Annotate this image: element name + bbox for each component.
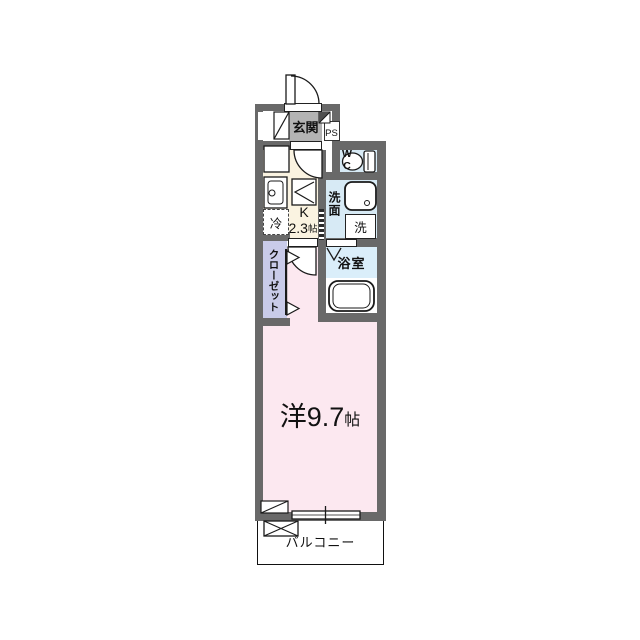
- closet-door-icon: [285, 249, 299, 315]
- kitchen-size-unit: 帖: [308, 221, 318, 235]
- ps-label: PS: [323, 126, 340, 140]
- shoe-cabinet-icon: [274, 112, 289, 139]
- closet-label: クローゼット: [264, 244, 284, 316]
- kitchen-label: K: [292, 204, 316, 219]
- wc-label-line1: W: [342, 148, 352, 160]
- main-room-label: 洋9.7帖: [263, 395, 377, 433]
- wc-label: W C: [340, 149, 354, 173]
- balcony-label: バルコニー: [257, 532, 384, 550]
- kitchen-size-value: 2.3: [289, 220, 308, 236]
- washroom-label: 洗面: [327, 186, 342, 222]
- main-room-size-unit: 帖: [344, 406, 360, 430]
- kitchen-counter-icon: [264, 146, 289, 172]
- kitchen-size: 2.3帖: [284, 219, 322, 236]
- floor-plan: 玄関 PS W C 洗面 洗 浴室 冷 K 2.3帖 クローゼット 洋9.7帖 …: [0, 0, 640, 640]
- bathtub-icon: [326, 278, 377, 313]
- genkan-label: 玄関: [289, 111, 322, 141]
- washer-label: 洗: [345, 214, 376, 239]
- hatch-box-icon: [261, 501, 288, 513]
- stove-icon: [292, 179, 316, 205]
- kitchen-door-icon: [294, 150, 322, 178]
- vanity-sink-icon: [345, 182, 376, 210]
- window-icon: [292, 506, 360, 524]
- entrance-door-icon: [286, 75, 319, 104]
- main-room-label-text: 洋9.7: [280, 395, 345, 434]
- bathroom-label: 浴室: [326, 253, 377, 271]
- kitchen-sink-icon: [264, 177, 287, 208]
- wc-label-line2: C: [343, 160, 351, 172]
